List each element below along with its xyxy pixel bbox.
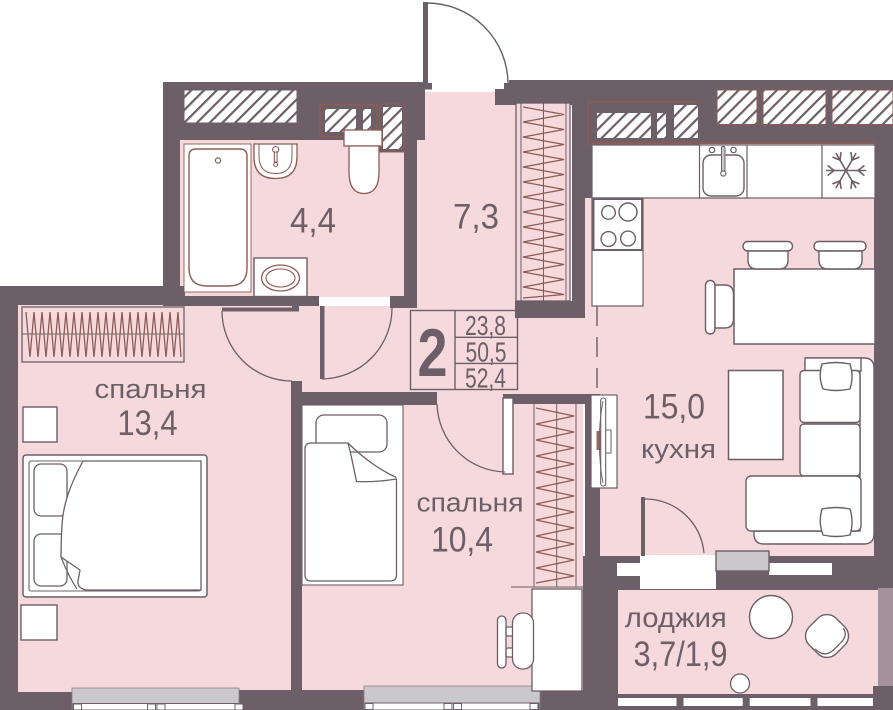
svg-text:3,7/1,9: 3,7/1,9	[634, 635, 728, 674]
svg-text:2: 2	[418, 315, 448, 391]
svg-text:4,4: 4,4	[290, 202, 336, 241]
svg-text:спальня: спальня	[95, 376, 207, 404]
svg-text:спальня: спальня	[417, 490, 524, 518]
svg-text:кухня: кухня	[641, 434, 716, 464]
svg-text:13,4: 13,4	[118, 404, 178, 443]
svg-text:7,3: 7,3	[453, 198, 499, 237]
svg-text:52,4: 52,4	[465, 362, 506, 393]
svg-text:10,4: 10,4	[431, 521, 493, 560]
svg-text:15,0: 15,0	[643, 388, 705, 427]
svg-text:лоджия: лоджия	[625, 602, 727, 633]
